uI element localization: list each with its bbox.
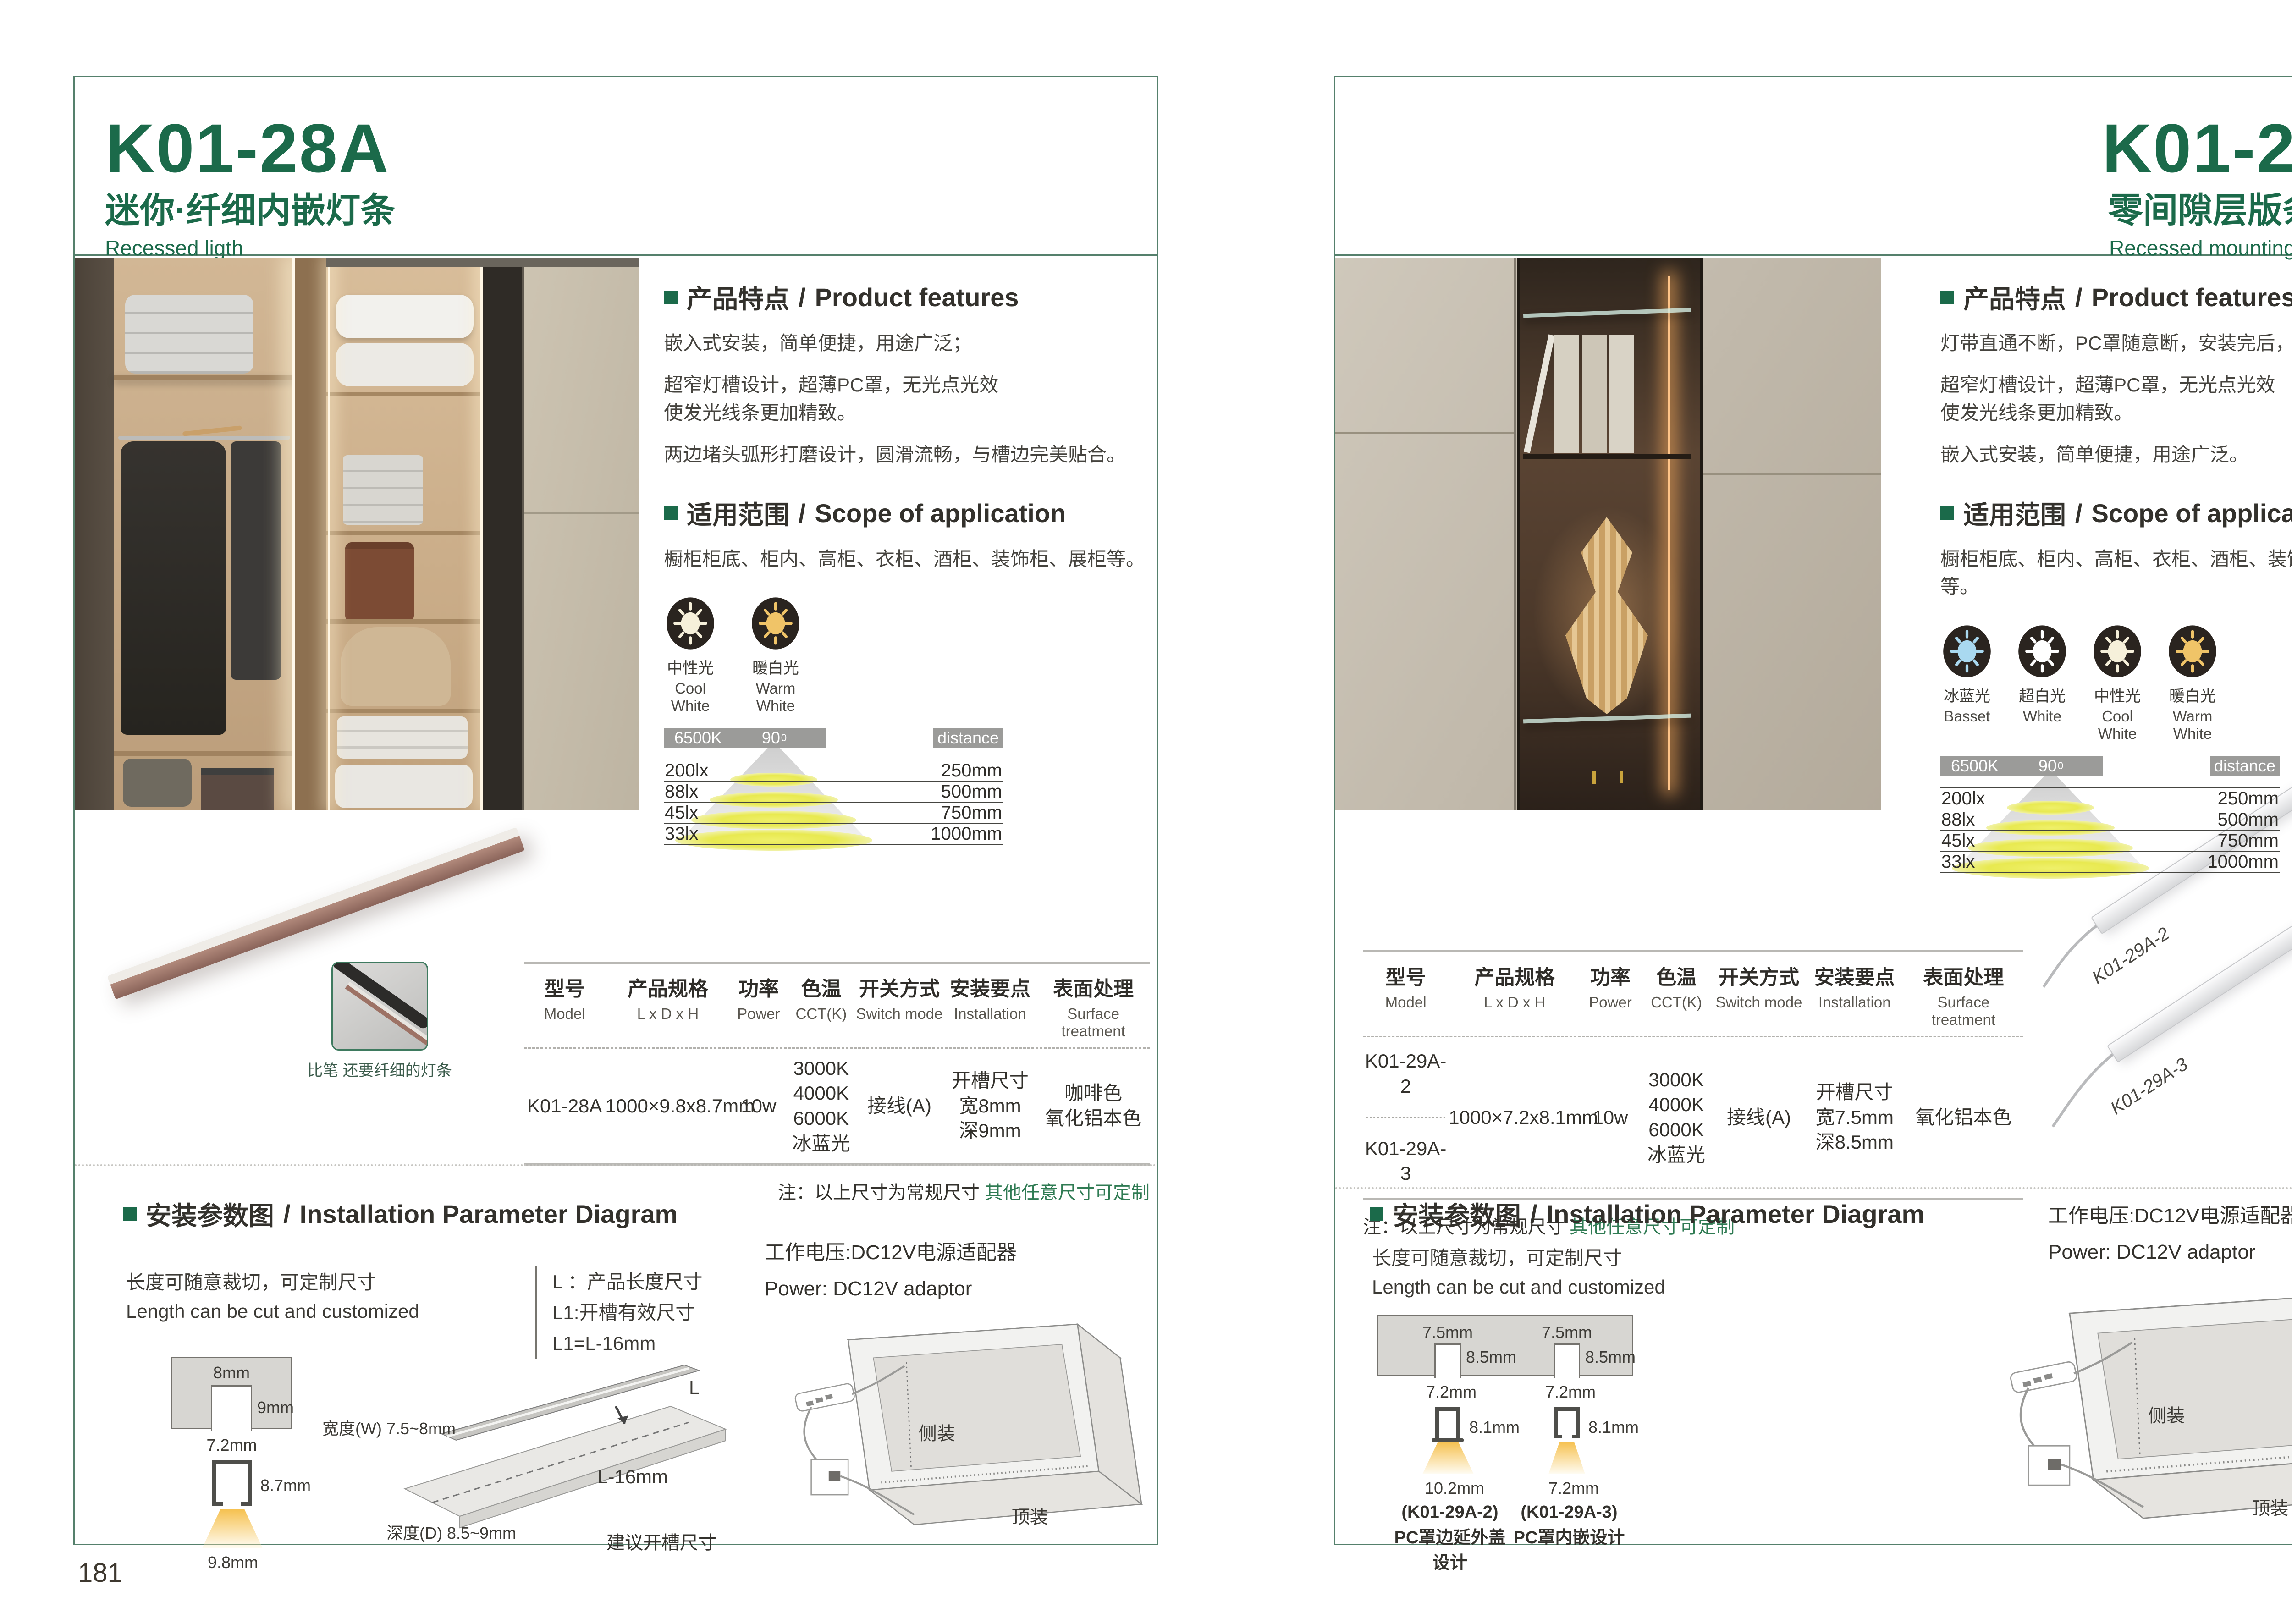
install-heading: 安装参数图 / Installation Parameter Diagram bbox=[123, 1195, 678, 1233]
jacket bbox=[121, 441, 226, 735]
shelf bbox=[326, 709, 483, 713]
dim-body-height: 8.7mm bbox=[260, 1476, 311, 1495]
scope-heading: 适用范围 / Scope of application bbox=[664, 495, 1150, 532]
slash: / bbox=[2075, 282, 2083, 312]
trousers bbox=[231, 441, 281, 680]
boxes bbox=[201, 768, 274, 810]
subtitle-cn: 迷你·纤细内嵌灯条 bbox=[105, 192, 1157, 230]
dim-slot-width: 8mm bbox=[211, 1363, 252, 1382]
light-label-en: Cool White bbox=[2091, 708, 2144, 743]
light-label-en: Warm White bbox=[749, 680, 802, 715]
section-divider bbox=[75, 1164, 1157, 1166]
light-label-en: Basset bbox=[1940, 708, 1994, 725]
cell-switch: 接线(A) bbox=[1713, 1105, 1805, 1130]
cell-install: 开槽尺寸 宽8mm 深9mm bbox=[943, 1068, 1037, 1144]
panel-seam bbox=[1335, 432, 1515, 434]
pen-comparison-inset bbox=[331, 962, 428, 1051]
cell-spec: 1000×9.8x8.7mm bbox=[605, 1094, 730, 1119]
length-legend: L ：产品长度尺寸 L1:开槽有效尺寸 L1=L-16mm bbox=[535, 1266, 702, 1359]
groove-notch bbox=[1434, 1343, 1461, 1378]
led-profile-bar bbox=[107, 827, 525, 1000]
cell-surface: 咖啡色 氧化铝本色 bbox=[1037, 1081, 1150, 1131]
light-label-cn: 中性光 bbox=[2091, 683, 2144, 706]
profile-foot bbox=[241, 1502, 251, 1506]
pouch bbox=[123, 759, 192, 807]
door-seam bbox=[524, 512, 639, 514]
title-block-left: K01-28A 迷你·纤细内嵌灯条 Recessed ligth bbox=[75, 77, 1157, 256]
shelf bbox=[114, 375, 295, 380]
photo-left-edge bbox=[75, 258, 114, 810]
book bbox=[1609, 335, 1634, 453]
table-data-row: K01-28A 1000×9.8x8.7mm 10w 3000K 4000K 6… bbox=[524, 1049, 1150, 1163]
slash: / bbox=[2075, 498, 2083, 528]
profile-foot bbox=[1555, 1435, 1562, 1438]
feature-item: 嵌入式安装，简单便捷，用途广泛。 bbox=[1940, 441, 2292, 469]
shelf-edge bbox=[1523, 454, 1691, 459]
cell-power: 10w bbox=[1581, 1105, 1640, 1130]
variant-caption-desc: PC罩边延外盖设计 bbox=[1386, 1523, 1514, 1574]
duffel-bag bbox=[341, 627, 451, 706]
label-side-mount: 侧装 bbox=[2148, 1401, 2185, 1427]
beam-cone bbox=[1548, 1442, 1585, 1474]
scope-heading: 适用范围 / Scope of application bbox=[1940, 495, 2292, 532]
photometry-row: 88lx500mm bbox=[1940, 809, 2280, 830]
pen-caption: 比笔 还要纤细的灯条 bbox=[281, 1058, 478, 1080]
wardrobe-divider bbox=[295, 258, 326, 810]
groove-hint: 建议开槽尺寸 bbox=[606, 1528, 716, 1554]
brass-hook bbox=[1620, 771, 1623, 783]
beam-angle-badge: 900 bbox=[722, 728, 826, 748]
photometry-rows: 200lx250mm 88lx500mm 45lx750mm 33lx1000m… bbox=[664, 760, 1003, 845]
dim-body-width: 7.2mm bbox=[201, 1436, 263, 1455]
variant-caption-model: (K01-29A-2) bbox=[1397, 1503, 1503, 1522]
page-title: K01-29A bbox=[1335, 114, 2292, 182]
model-dotted-divider bbox=[1366, 1117, 1445, 1118]
profile-section bbox=[1554, 1407, 1580, 1438]
label-top-mount: 顶装 bbox=[2252, 1493, 2288, 1520]
light-color-options: 冰蓝光 Basset 超白光 White bbox=[1940, 625, 2292, 743]
photometry-row: 45lx750mm bbox=[1940, 830, 2280, 851]
light-label-cn: 暖白光 bbox=[2166, 683, 2219, 706]
profile-section bbox=[1435, 1407, 1460, 1438]
green-square-icon bbox=[1940, 291, 1954, 304]
title-block-right: K01-29A 零间隙层版条形灯 Recessed mounting LED l… bbox=[1335, 77, 2292, 256]
subtitle-en: Recessed mounting LED light bbox=[1335, 236, 2292, 260]
product-photo-cabinet bbox=[1335, 258, 1881, 810]
features-heading: 产品特点 / Product features bbox=[1940, 279, 2292, 316]
photometry-row: 45lx750mm bbox=[664, 802, 1003, 823]
slash: / bbox=[799, 282, 806, 312]
photometry-row: 200lx250mm bbox=[1940, 787, 2280, 809]
bedding bbox=[335, 765, 473, 808]
dim-length: L bbox=[689, 1376, 700, 1398]
page-title: K01-28A bbox=[105, 114, 1157, 182]
light-label-cn: 暖白光 bbox=[749, 655, 802, 678]
light-option: 暖白光 Warm White bbox=[2166, 625, 2219, 743]
features-panel: 产品特点 / Product features 灯带直通不断，PC罩随意断，安装… bbox=[1940, 279, 2292, 876]
green-square-icon bbox=[1940, 506, 1954, 520]
photometry-rows: 200lx250mm 88lx500mm 45lx750mm 33lx1000m… bbox=[1940, 787, 2280, 873]
panel-seam bbox=[1700, 473, 1881, 475]
scope-text: 橱柜柜底、柜内、高柜、衣柜、酒柜、装饰柜、展柜等。 bbox=[664, 545, 1150, 573]
dim-slot-depth: 8.5mm bbox=[1466, 1348, 1516, 1367]
groove-notch bbox=[211, 1385, 252, 1431]
scope-title-en: Scope of application bbox=[2092, 498, 2292, 528]
top-rail bbox=[326, 258, 639, 267]
linens bbox=[337, 716, 468, 759]
install-heading: 安装参数图 / Installation Parameter Diagram bbox=[1370, 1195, 1924, 1233]
angle-value: 90 bbox=[762, 728, 780, 748]
table-data-row: K01-29A-2 K01-29A-3 1000×7.2x8.1mm 10w 3… bbox=[1363, 1037, 2023, 1198]
catalog-page-right: K01-29A 零间隙层版条形灯 Recessed mounting LED l… bbox=[1334, 76, 2292, 1545]
note-highlight: 其他任意尺寸可定制 bbox=[985, 1183, 1150, 1203]
dim-beam: 9.8mm bbox=[201, 1553, 265, 1572]
photometry-chart: 6500K 900 distance 200lx250mm 88lx500mm … bbox=[1940, 756, 2280, 876]
green-square-icon bbox=[664, 506, 678, 520]
light-option: 超白光 White bbox=[2016, 625, 2069, 743]
label-top-mount: 顶装 bbox=[1012, 1502, 1048, 1529]
cabinet-diagram: 侧装 顶装 bbox=[2005, 1280, 2292, 1537]
light-option: 冰蓝光 Basset bbox=[1940, 625, 1994, 743]
towel-stack bbox=[125, 295, 253, 374]
feature-item: 超窄灯槽设计，超薄PC罩，无光点光效 使发光线条更加精致。 bbox=[664, 371, 1150, 427]
cell-switch: 接线(A) bbox=[855, 1094, 943, 1119]
light-label-cn: 超白光 bbox=[2016, 683, 2069, 706]
table-header-row: 型号Model 产品规格L x D x H 功率Power 色温CCT(K) 开… bbox=[1363, 952, 2023, 1036]
cell-model: K01-28A bbox=[524, 1094, 605, 1119]
profile-flange bbox=[1432, 1438, 1464, 1442]
cross-section-diagram: 7.5mm 7.5mm 8.5mm 8.5mm 7.2mm 7.2mm 8.1m… bbox=[1372, 1310, 1665, 1544]
green-square-icon bbox=[1370, 1207, 1383, 1221]
scope-title-cn: 适用范围 bbox=[1963, 495, 2066, 532]
photometry-row: 33lx1000mm bbox=[664, 823, 1003, 845]
dim-body-height: 8.1mm bbox=[1588, 1418, 1639, 1437]
led-strip-glow bbox=[292, 258, 295, 810]
shelf bbox=[114, 751, 295, 756]
cabinet-drawing bbox=[790, 1310, 1147, 1541]
power-note: 工作电压:DC12V电源适配器 Power: DC12V adaptor bbox=[765, 1234, 1017, 1307]
subtitle-cn: 零间隙层版条形灯 bbox=[1335, 192, 2292, 230]
sun-icon bbox=[2018, 625, 2066, 678]
dim-slot-width: 7.5mm bbox=[1542, 1323, 1592, 1342]
light-option: 中性光 Cool White bbox=[664, 597, 717, 715]
features-panel: 产品特点 / Product features 嵌入式安装，简单便捷，用途广泛；… bbox=[664, 279, 1150, 848]
light-label-en: Warm White bbox=[2166, 708, 2219, 743]
book bbox=[1554, 335, 1579, 453]
sun-icon bbox=[2093, 625, 2142, 678]
dim-beam: 10.2mm bbox=[1425, 1479, 1471, 1498]
cell-spec: 1000×7.2x8.1mm bbox=[1449, 1105, 1581, 1130]
cell-surface: 氧化铝本色 bbox=[1904, 1105, 2023, 1130]
dark-niche bbox=[483, 258, 522, 810]
product-photo-wardrobe bbox=[75, 258, 639, 810]
light-color-options: 中性光 Cool White 暖白光 Warm White bbox=[664, 597, 1150, 715]
angle-value: 90 bbox=[2039, 756, 2057, 776]
feature-item: 两边堵头弧形打磨设计，圆滑流畅，与槽边完美贴合。 bbox=[664, 441, 1150, 469]
features-title-cn: 产品特点 bbox=[687, 279, 789, 316]
photometry-row: 33lx1000mm bbox=[1940, 851, 2280, 873]
angle-sup: 0 bbox=[2058, 760, 2063, 772]
sun-icon bbox=[1943, 625, 1991, 678]
features-title-cn: 产品特点 bbox=[1963, 279, 2066, 316]
green-square-icon bbox=[664, 291, 678, 304]
folded-clothes bbox=[343, 455, 423, 525]
cell-cct: 3000K 4000K 6000K 冰蓝光 bbox=[787, 1056, 855, 1156]
panel-block bbox=[1377, 1315, 1633, 1376]
leather-satchel bbox=[345, 542, 414, 622]
light-label-en: White bbox=[2016, 708, 2069, 725]
profile-section bbox=[212, 1460, 252, 1506]
scope-text: 橱柜柜底、柜内、高柜、衣柜、酒柜、装饰柜、展柜等。 bbox=[1940, 545, 2292, 601]
brass-hook bbox=[1592, 771, 1596, 784]
distance-badge: distance bbox=[2210, 756, 2280, 776]
board-drawing bbox=[322, 1351, 735, 1544]
cell-power: 10w bbox=[730, 1094, 787, 1119]
catalog-page-left: K01-28A 迷你·纤细内嵌灯条 Recessed ligth bbox=[73, 76, 1158, 1545]
beam-cone bbox=[1422, 1442, 1474, 1474]
groove-board-diagram: 宽度(W) 7.5~8mm L L-16mm 深度(D) 8.5~9mm 建议开… bbox=[322, 1351, 735, 1544]
sun-icon bbox=[2168, 625, 2217, 678]
beam-cone bbox=[202, 1509, 263, 1548]
shelf bbox=[326, 619, 483, 624]
feature-item: 超窄灯槽设计，超薄PC罩，无光点光效 使发光线条更加精致。 bbox=[1940, 371, 2292, 427]
dim-slot-depth: 8.5mm bbox=[1585, 1348, 1636, 1367]
photometry-row: 200lx250mm bbox=[664, 760, 1003, 781]
light-label-cn: 冰蓝光 bbox=[1940, 683, 1994, 706]
cell-cct: 3000K 4000K 6000K 冰蓝光 bbox=[1640, 1068, 1713, 1167]
section-divider bbox=[1335, 1187, 2292, 1189]
shelf bbox=[326, 392, 483, 396]
dim-body-width: 7.2mm bbox=[1426, 1382, 1470, 1402]
sun-icon bbox=[751, 597, 800, 650]
pen-graphic bbox=[331, 962, 428, 1030]
dim-groove-depth: 深度(D) 8.5~9mm bbox=[386, 1520, 516, 1544]
profile-foot bbox=[213, 1502, 223, 1506]
distance-badge: distance bbox=[933, 728, 1003, 748]
features-title-en: Product features bbox=[2092, 282, 2292, 312]
scope-title-en: Scope of application bbox=[815, 498, 1066, 528]
variant-caption-desc: PC罩内嵌设计 bbox=[1510, 1523, 1629, 1548]
panel-seam bbox=[1514, 258, 1516, 810]
dim-slot-width: 7.5mm bbox=[1422, 1323, 1473, 1342]
page-number-left: 181 bbox=[78, 1558, 122, 1588]
light-label-en: Cool White bbox=[664, 680, 717, 715]
cut-note: 长度可随意裁切，可定制尺寸 Length can be cut and cust… bbox=[1372, 1244, 1665, 1301]
photometry-chart: 6500K 900 distance 200lx250mm 88lx500mm … bbox=[664, 728, 1003, 848]
hanging-rod bbox=[118, 436, 290, 440]
book bbox=[1582, 335, 1607, 453]
pillow bbox=[336, 343, 474, 386]
dim-body-width: 7.2mm bbox=[1545, 1382, 1589, 1402]
light-label-cn: 中性光 bbox=[664, 655, 717, 678]
subtitle-en: Recessed ligth bbox=[105, 236, 1157, 260]
beam-angle-badge: 900 bbox=[1999, 756, 2103, 776]
pillow bbox=[336, 295, 474, 338]
cut-note: 长度可随意裁切，可定制尺寸 Length can be cut and cust… bbox=[126, 1268, 419, 1326]
scope-title-cn: 适用范围 bbox=[687, 495, 789, 532]
features-title-en: Product features bbox=[815, 282, 1019, 312]
dim-body-height: 8.1mm bbox=[1469, 1418, 1520, 1437]
dim-cut-length: L-16mm bbox=[597, 1466, 668, 1488]
cell-model: K01-29A-2 K01-29A-3 bbox=[1363, 1049, 1449, 1186]
feature-item: 嵌入式安装，简单便捷，用途广泛； bbox=[664, 330, 1150, 358]
label-side-mount: 侧装 bbox=[919, 1419, 955, 1445]
slash: / bbox=[799, 498, 806, 528]
dim-slot-depth: 9mm bbox=[257, 1398, 294, 1417]
photometry-row: 88lx500mm bbox=[664, 781, 1003, 802]
features-heading: 产品特点 / Product features bbox=[664, 279, 1150, 316]
light-option: 暖白光 Warm White bbox=[749, 597, 802, 715]
light-option: 中性光 Cool White bbox=[2091, 625, 2144, 743]
cell-install: 开槽尺寸 宽7.5mm 深8.5mm bbox=[1805, 1080, 1904, 1155]
led-strip-glow bbox=[328, 258, 330, 810]
power-note: 工作电压:DC12V电源适配器 Power: DC12V adaptor bbox=[2048, 1198, 2292, 1270]
profile-foot bbox=[1572, 1435, 1578, 1438]
sun-icon bbox=[666, 597, 715, 650]
shelf bbox=[326, 531, 483, 535]
sliding-door bbox=[522, 258, 639, 810]
variant-caption-model: (K01-29A-3) bbox=[1516, 1503, 1622, 1522]
green-square-icon bbox=[123, 1207, 137, 1221]
cabinet-diagram: 侧装 顶装 bbox=[790, 1310, 1147, 1541]
dim-groove-width: 宽度(W) 7.5~8mm bbox=[322, 1415, 456, 1439]
groove-notch bbox=[1554, 1343, 1580, 1378]
table-header-row: 型号Model 产品规格L x D x H 功率Power 色温CCT(K) 开… bbox=[524, 964, 1150, 1047]
spec-table: 型号Model 产品规格L x D x H 功率Power 色温CCT(K) 开… bbox=[524, 962, 1150, 1204]
angle-sup: 0 bbox=[781, 732, 787, 744]
feature-item: 灯带直通不断，PC罩随意断，安装完后，再盖灯罩； bbox=[1940, 330, 2292, 358]
dim-beam: 7.2mm bbox=[1548, 1479, 1585, 1498]
